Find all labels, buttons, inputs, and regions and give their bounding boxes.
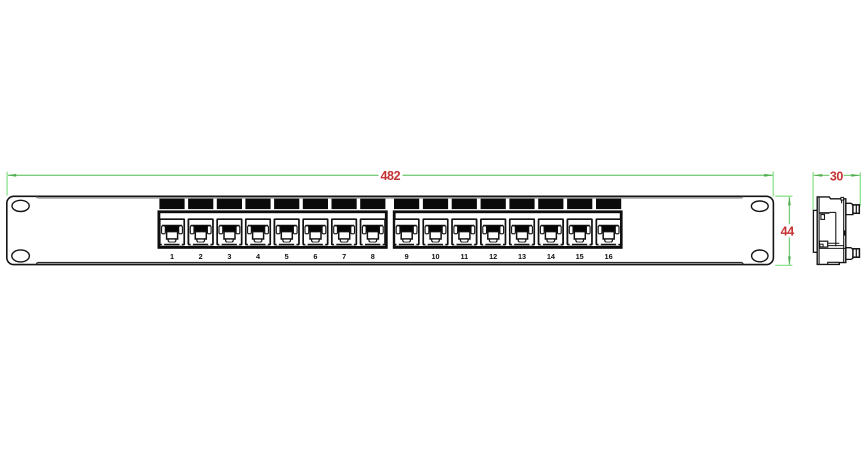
svg-text:44: 44 (781, 225, 795, 239)
svg-text:14: 14 (547, 252, 556, 261)
svg-text:3: 3 (227, 252, 231, 261)
svg-text:1: 1 (170, 252, 174, 261)
svg-text:11: 11 (460, 252, 468, 261)
svg-text:10: 10 (431, 252, 439, 261)
svg-text:16: 16 (605, 252, 613, 261)
svg-text:15: 15 (576, 252, 584, 261)
svg-text:12: 12 (489, 252, 497, 261)
svg-text:8: 8 (371, 252, 375, 261)
svg-text:7: 7 (342, 252, 346, 261)
svg-text:482: 482 (380, 169, 400, 183)
svg-text:13: 13 (518, 252, 526, 261)
svg-text:2: 2 (199, 252, 203, 261)
svg-text:9: 9 (405, 252, 409, 261)
svg-text:6: 6 (313, 252, 317, 261)
svg-text:30: 30 (830, 169, 844, 183)
svg-text:5: 5 (285, 252, 289, 261)
